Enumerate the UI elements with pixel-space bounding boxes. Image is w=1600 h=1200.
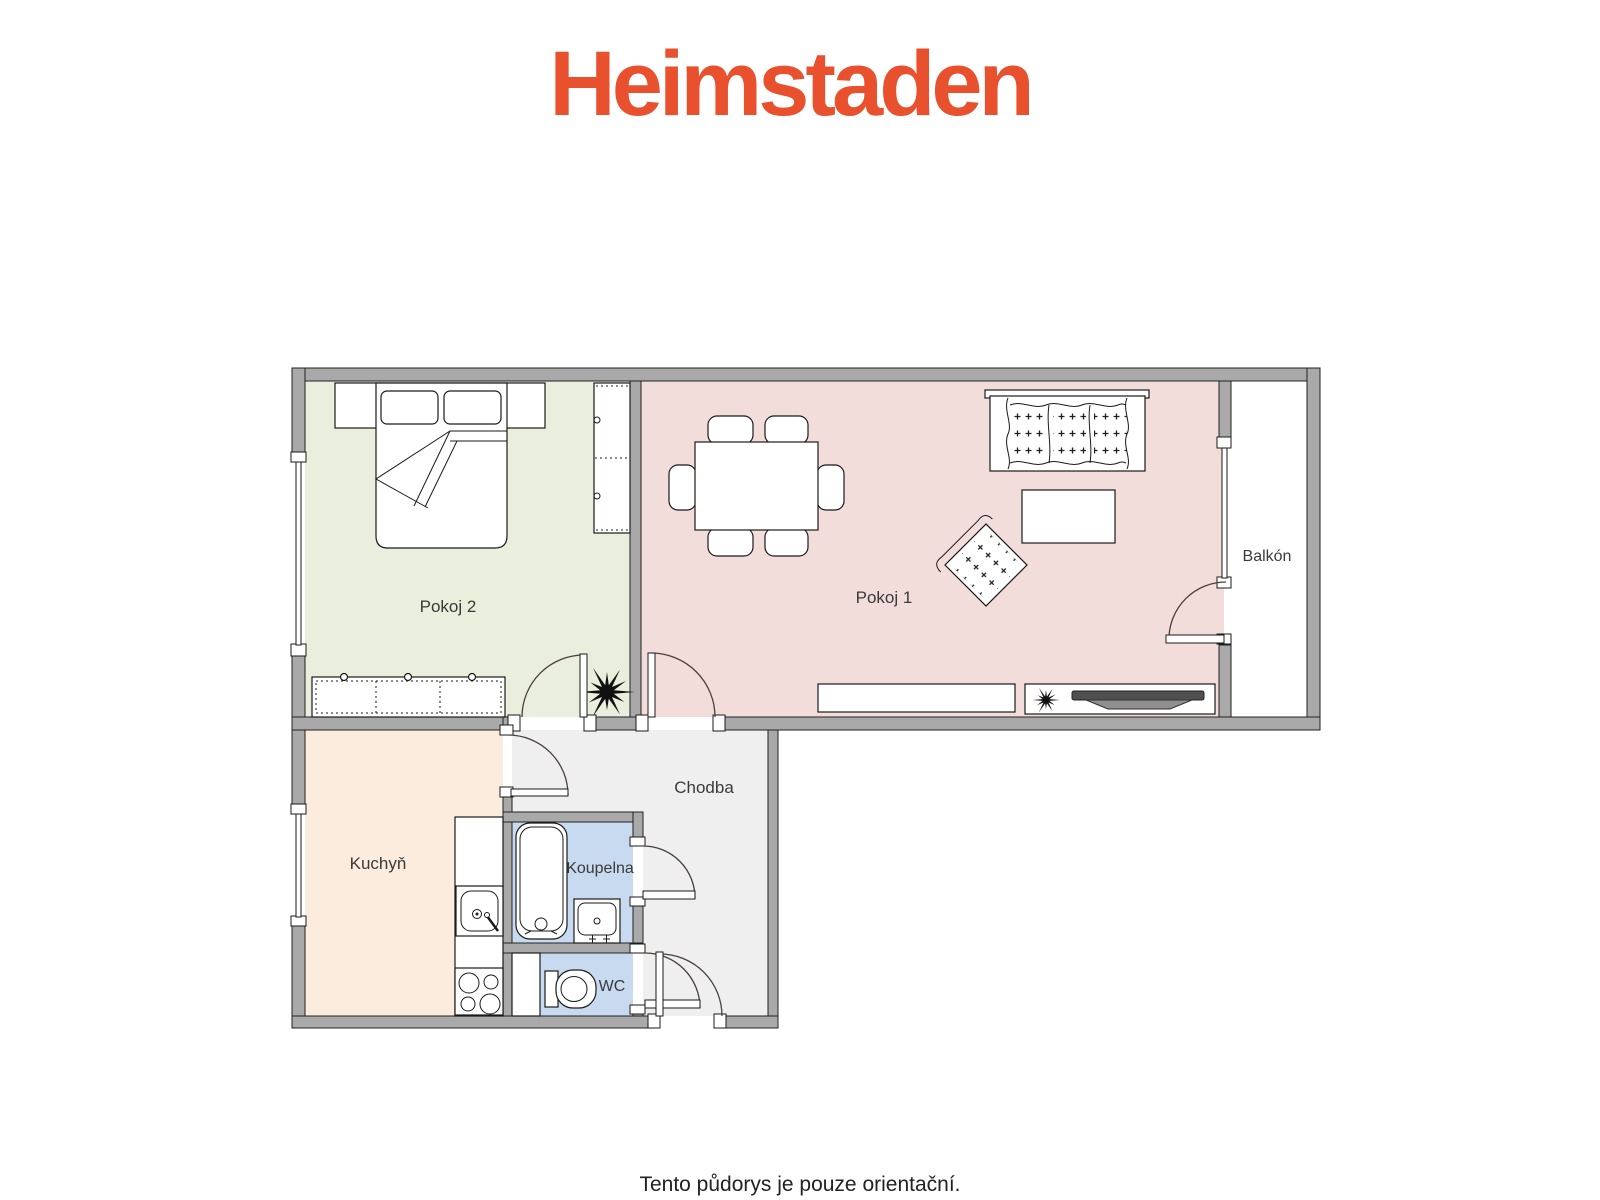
wall-balcony-bottom: [1219, 645, 1231, 717]
toilet-bowl: [556, 970, 596, 1008]
room-label-pokoj2: Pokoj 2: [420, 597, 477, 616]
room-label-kuchyn: Kuchyň: [350, 854, 407, 873]
koupelna-door-leaf: [643, 891, 695, 899]
wall-mid-horizontal-1: [292, 717, 520, 730]
coffee-table: [1022, 490, 1115, 543]
wall-bottom-1: [292, 1016, 660, 1028]
floorplan-svg: Pokoj 2 Pokoj 1 Balkón Kuchyň Chodba Kou…: [0, 0, 1600, 1200]
wall-balcony-top-stub: [1219, 381, 1231, 438]
wall-koupelna-wc-divider: [503, 943, 643, 953]
dresser-knob: [341, 674, 348, 681]
door-jamb: [500, 725, 513, 735]
wall-left-3: [292, 926, 305, 1028]
bathtub: [516, 823, 567, 939]
wall-right: [1307, 368, 1320, 730]
disclaimer-text: Tento půdorys je pouze orientační.: [0, 1173, 1600, 1197]
room-label-balkon: Balkón: [1243, 548, 1292, 565]
wall-kitchen-low: [503, 822, 512, 1016]
balkon-door-leaf: [1166, 635, 1224, 643]
wall-left-1: [292, 368, 305, 462]
dining-chair: [669, 465, 696, 510]
washbasin: [574, 899, 620, 943]
door-jamb: [630, 1005, 645, 1014]
dining-chair: [765, 528, 808, 556]
pokoj2-door-leaf: [580, 654, 587, 717]
room-label-wc: WC: [599, 978, 626, 995]
dresser: [312, 677, 505, 717]
entrance-door-leaf: [656, 952, 663, 1016]
dining-chair: [708, 528, 753, 556]
dresser-knob: [405, 674, 412, 681]
window-cap: [291, 804, 306, 814]
sink-drain-dot: [476, 913, 479, 916]
sink-faucet-tip: [485, 913, 490, 918]
sofa-tufting: [1012, 409, 1045, 460]
chodba-floor-upper: [512, 730, 768, 812]
door-jamb: [714, 1014, 726, 1028]
room-label-pokoj1: Pokoj 1: [856, 588, 913, 607]
window-cap: [291, 452, 306, 462]
room-label-koupelna: Koupelna: [566, 860, 634, 877]
dining-chair: [817, 465, 844, 510]
kuchyn-door-leaf: [511, 789, 568, 796]
wall-koupelna-top: [503, 812, 643, 822]
wall-top: [292, 368, 1320, 381]
wall-mid-horizontal-3: [713, 717, 1320, 730]
kuchyn-furniture: [455, 817, 503, 1016]
wall-pokoj-divider: [630, 381, 641, 717]
kuchyn-window: [296, 814, 301, 917]
pokoj1-door-leaf: [648, 653, 655, 717]
dining-table: [695, 442, 818, 530]
door-jamb: [636, 715, 648, 731]
pillow: [381, 391, 438, 424]
window-cap: [291, 644, 306, 656]
dining-chair: [765, 416, 808, 444]
sofa-tufting: [1094, 409, 1127, 460]
dining-chair: [708, 416, 753, 444]
door-jamb: [630, 944, 645, 953]
pokoj2-window: [296, 462, 301, 645]
wc-door-leaf: [645, 1000, 700, 1008]
room-label-chodba: Chodba: [674, 778, 734, 797]
sideboard: [818, 684, 1015, 712]
window-cap: [1217, 437, 1231, 448]
sofa-tufting: [1053, 409, 1086, 460]
dresser-knob: [469, 674, 476, 681]
wall-chodba-right: [768, 730, 778, 1028]
balkon-window: [1222, 448, 1227, 578]
pillow: [444, 391, 501, 424]
tv: [1072, 691, 1204, 700]
door-jamb: [630, 837, 645, 846]
shaft: [512, 953, 540, 1016]
door-jamb: [713, 715, 725, 731]
